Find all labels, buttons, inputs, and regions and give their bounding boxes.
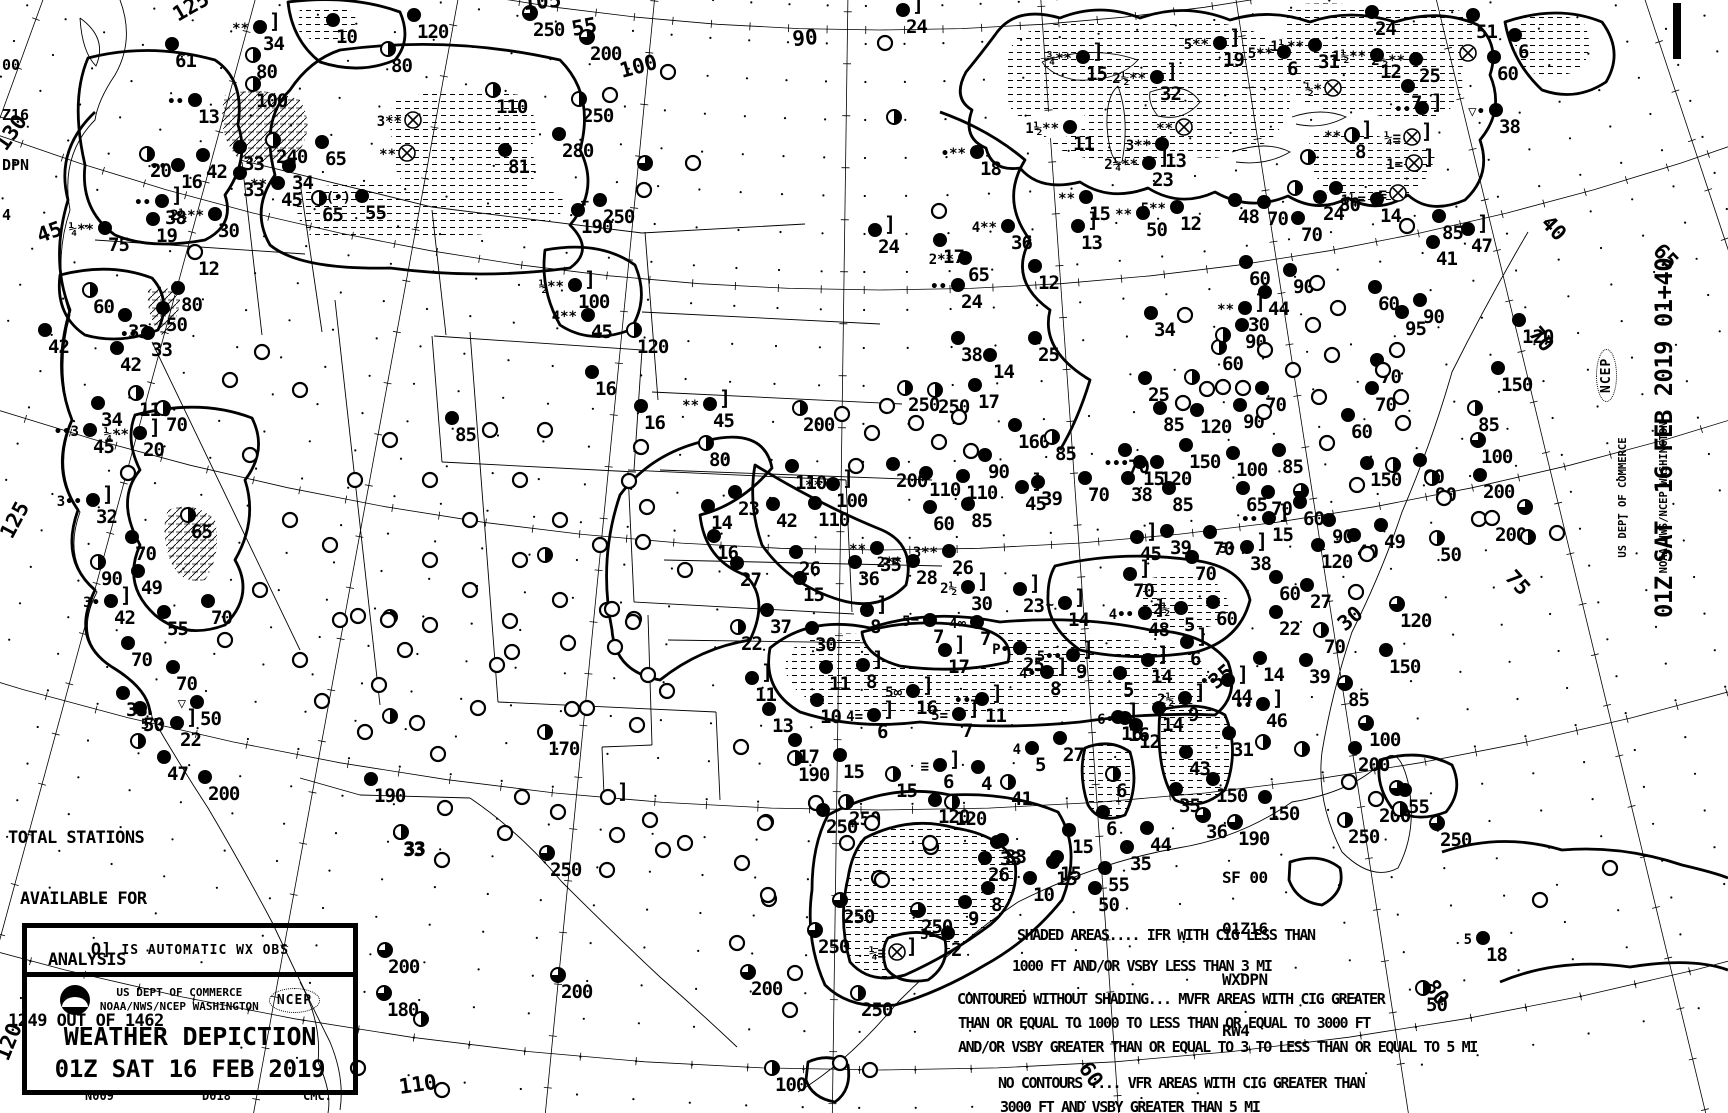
svg-text:••: ••	[150, 159, 167, 175]
svg-text:]: ]	[872, 647, 884, 671]
svg-text:**: **	[849, 542, 866, 558]
station-plot: 47	[157, 750, 188, 785]
svg-text:4: 4	[1013, 742, 1021, 758]
station-plot: 27	[1053, 731, 1084, 766]
svg-text:••: ••	[1394, 102, 1411, 118]
station-plot	[483, 423, 497, 437]
station-plot	[1386, 458, 1400, 472]
svg-text:2½: 2½	[940, 581, 957, 597]
svg-text:]: ]	[719, 386, 731, 410]
stats-line: AVAILABLE FOR	[20, 891, 164, 908]
svg-text:½**: ½**	[539, 279, 564, 295]
station-plot: 50	[1430, 531, 1461, 566]
station-plot	[758, 816, 772, 830]
station-plot: 70	[1078, 471, 1109, 506]
station-plot	[835, 407, 849, 421]
station-plot: 49	[1374, 518, 1405, 553]
station-plot	[1286, 363, 1300, 377]
station-plot	[1216, 328, 1230, 342]
station-plot: 44	[1140, 821, 1171, 856]
svg-text:55: 55	[1108, 874, 1129, 896]
contoured-note-2: THAN OR EQUAL TO 1000 TO LESS THAN OR EQ…	[958, 1016, 1370, 1031]
svg-text:15: 15	[1089, 203, 1110, 225]
svg-text:¼**: ¼**	[69, 222, 94, 238]
svg-text:60: 60	[1351, 421, 1372, 443]
station-plot	[1200, 382, 1214, 396]
svg-text:100: 100	[578, 291, 610, 313]
side-agency: US DEPT OF COMMERCE NOAA/NWS/NCEP WASHIN…	[1590, 410, 1685, 585]
svg-text:42: 42	[48, 336, 69, 358]
svg-text:25: 25	[1038, 344, 1059, 366]
station-plot: 200	[1473, 468, 1515, 503]
svg-text:38: 38	[1131, 484, 1152, 506]
svg-text:120: 120	[1400, 610, 1432, 632]
svg-text:50: 50	[1440, 544, 1461, 566]
svg-text:44: 44	[1150, 834, 1171, 856]
svg-text:18: 18	[1486, 944, 1507, 966]
svg-text:**: **	[1058, 191, 1075, 207]
station-plot: 150	[1258, 790, 1300, 825]
station-plot	[551, 805, 565, 819]
svg-text:16: 16	[644, 412, 665, 434]
svg-text:6: 6	[1190, 648, 1201, 670]
station-plot: 120	[627, 323, 669, 358]
svg-text:60: 60	[1279, 583, 1300, 605]
svg-text:60: 60	[1222, 353, 1243, 375]
station-plot: 70	[166, 660, 197, 695]
svg-text:]: ]	[1157, 642, 1169, 666]
side-dept-line: US DEPT OF COMMERCE	[1617, 410, 1631, 585]
svg-text:90: 90	[988, 461, 1009, 483]
svg-text:]: ]	[269, 9, 281, 33]
station-plot	[315, 694, 329, 708]
contoured-note-3: AND/OR VSBY GREATER THAN OR EQUAL TO 3 T…	[958, 1040, 1477, 1055]
svg-text:••: ••	[1235, 698, 1252, 714]
station-plot	[840, 836, 854, 850]
station-plot	[788, 966, 802, 980]
station-plot: 42	[766, 497, 797, 532]
station-plot	[1472, 512, 1486, 526]
svg-text:60: 60	[1303, 508, 1324, 530]
svg-text:∼: ∼	[1046, 597, 1054, 613]
svg-text:4••: 4••	[1109, 607, 1134, 623]
svg-text:5: 5	[1184, 614, 1195, 636]
svg-text:48: 48	[1238, 206, 1259, 228]
svg-text:16: 16	[595, 378, 616, 400]
station-plot	[622, 474, 636, 488]
svg-text:30: 30	[815, 634, 836, 656]
station-plot: 38	[951, 331, 982, 366]
station-plot	[333, 613, 347, 627]
svg-text:4•: 4•	[1019, 666, 1036, 682]
station-plot	[435, 853, 449, 867]
svg-text:280: 280	[562, 140, 594, 162]
station-plot: 34**]	[232, 9, 284, 55]
code-line: 4	[2, 208, 29, 223]
station-plot	[414, 1012, 428, 1026]
station-plot	[1603, 861, 1617, 875]
svg-text:65: 65	[191, 521, 212, 543]
svg-text:27: 27	[1310, 591, 1331, 613]
svg-text:4=: 4=	[846, 709, 863, 725]
svg-text:250: 250	[1348, 826, 1380, 848]
svg-text:14: 14	[1151, 666, 1172, 688]
svg-text:]: ]	[120, 583, 132, 607]
station-plot	[293, 383, 307, 397]
station-plot	[909, 416, 923, 430]
station-plot	[1349, 585, 1363, 599]
svg-text:42: 42	[120, 354, 141, 376]
svg-text:9: 9	[968, 908, 979, 930]
station-plot	[600, 863, 614, 877]
svg-text:190: 190	[581, 216, 613, 238]
station-plot	[887, 110, 901, 124]
grid-label: 90	[791, 25, 818, 51]
svg-text:26: 26	[952, 557, 973, 579]
station-plot: 60	[83, 283, 114, 318]
svg-text:2**: 2**	[877, 555, 902, 571]
svg-text:45: 45	[591, 321, 612, 343]
svg-text:27: 27	[740, 569, 761, 591]
svg-text:]: ]	[1166, 59, 1178, 83]
svg-text:]: ]	[1237, 662, 1249, 686]
station-plot: 39	[1299, 653, 1330, 688]
station-plot	[640, 500, 654, 514]
station-plot: 50▽	[178, 695, 222, 730]
station-plot	[610, 828, 624, 842]
station-plot: 100½**]	[539, 267, 610, 313]
svg-text:2: 2	[951, 939, 961, 961]
station-plot	[637, 183, 651, 197]
svg-text:**: **	[1217, 302, 1234, 318]
svg-text:]: ]	[1421, 119, 1433, 143]
svg-text:2½: 2½	[1157, 692, 1174, 708]
svg-text:41: 41	[1011, 788, 1032, 810]
station-plot: 15**	[1058, 190, 1110, 225]
svg-text:≡: ≡	[921, 759, 929, 775]
svg-text:11: 11	[1073, 133, 1094, 155]
station-plot: 70	[1291, 211, 1322, 246]
svg-text:**: **	[805, 478, 822, 494]
svg-text:20: 20	[143, 439, 164, 461]
svg-text:2¼**: 2¼**	[1104, 157, 1138, 173]
svg-text:]: ]	[1229, 25, 1241, 49]
station-plot: 85	[1338, 676, 1369, 711]
svg-text:70: 70	[1301, 224, 1322, 246]
station-plot: 15	[833, 748, 864, 783]
svg-text:42: 42	[206, 161, 227, 183]
svg-text:85: 85	[1348, 689, 1369, 711]
svg-text:5”•: 5”•	[141, 717, 166, 733]
svg-text:]: ]	[1423, 145, 1435, 169]
svg-text:15: 15	[843, 761, 864, 783]
svg-text:5**: 5**	[1141, 201, 1166, 217]
station-plot: 14	[1253, 651, 1284, 686]
station-plot: 200	[1485, 511, 1527, 546]
station-plot	[358, 725, 372, 739]
svg-text:]: ]	[617, 779, 629, 803]
svg-text:75: 75	[108, 234, 129, 256]
station-plot	[660, 684, 674, 698]
svg-text:••: ••	[167, 94, 184, 110]
svg-text:]: ]	[102, 482, 114, 506]
svg-text:¼≡: ¼≡	[869, 946, 886, 962]
station-plot: 60	[1212, 340, 1243, 375]
svg-text:]: ]	[954, 632, 966, 656]
svg-text:43: 43	[1189, 758, 1210, 780]
station-plot: 3**	[377, 112, 421, 130]
svg-text:70: 70	[1267, 208, 1288, 230]
grid-label: 100	[617, 50, 660, 83]
svg-text:3••: 3••	[57, 494, 82, 510]
station-plot	[678, 836, 692, 850]
station-plot: 11]	[745, 660, 776, 706]
station-plot	[865, 426, 879, 440]
svg-text:170: 170	[548, 738, 580, 760]
stats-line: TOTAL STATIONS	[8, 830, 164, 847]
svg-text:6: 6	[1116, 780, 1127, 802]
svg-text:34: 34	[1154, 319, 1175, 341]
svg-text:1½**: 1½**	[1332, 49, 1366, 65]
station-plot: 70	[125, 530, 156, 565]
auto-obs-label: IS AUTOMATIC WX OBS	[121, 943, 289, 958]
station-plot	[641, 668, 655, 682]
station-plot	[1257, 405, 1271, 419]
svg-text:14: 14	[1380, 205, 1401, 227]
svg-text:]: ]	[149, 415, 161, 439]
station-plot: 80	[381, 42, 412, 77]
station-plot	[1350, 478, 1364, 492]
svg-text:22: 22	[1279, 618, 1300, 640]
svg-text:]: ]	[1092, 39, 1104, 63]
station-plot	[323, 538, 337, 552]
svg-text:]: ]	[1127, 699, 1139, 723]
svg-text:8: 8	[866, 671, 877, 693]
shaded-areas-note-1: SHADED AREAS.... IFR WITH CIG LESS THAN	[1017, 928, 1315, 943]
svg-text:•••: •••	[1104, 456, 1129, 472]
svg-text:]: ]	[1196, 624, 1208, 648]
svg-text:(•): (•)	[326, 190, 351, 206]
station-plot: 6≡]	[921, 747, 961, 793]
station-plot: 23]	[1013, 571, 1044, 617]
station-plot: 25	[1138, 371, 1169, 406]
svg-text:30: 30	[971, 593, 992, 615]
svg-text:15: 15	[1272, 524, 1293, 546]
svg-text:85: 85	[971, 510, 992, 532]
svg-text:23: 23	[738, 498, 759, 520]
station-plot	[410, 716, 424, 730]
svg-text:60: 60	[933, 513, 954, 535]
svg-text:]: ]	[1158, 145, 1170, 169]
svg-text:100: 100	[775, 1074, 807, 1096]
svg-text:70: 70	[1195, 563, 1216, 585]
svg-text:120: 120	[417, 21, 449, 43]
svg-text:15: 15	[803, 584, 824, 606]
svg-text:]: ]	[761, 660, 773, 684]
station-plot	[423, 473, 437, 487]
svg-text:25: 25	[1148, 384, 1169, 406]
station-plot	[833, 1056, 847, 1070]
svg-text:]: ]	[991, 681, 1003, 705]
station-plot	[255, 345, 269, 359]
svg-text:250: 250	[921, 916, 953, 938]
svg-text:100: 100	[256, 90, 288, 112]
station-plot: 25	[1028, 331, 1059, 366]
station-plot	[1301, 150, 1315, 164]
svg-text:150: 150	[1389, 656, 1421, 678]
svg-text:5: 5	[1035, 754, 1046, 776]
svg-text:5: 5	[1123, 679, 1134, 701]
svg-text:38: 38	[961, 344, 982, 366]
svg-text:70: 70	[1088, 484, 1109, 506]
station-plot	[580, 701, 594, 715]
svg-text:47: 47	[1471, 235, 1492, 257]
station-plot	[1288, 181, 1302, 195]
station-plot	[423, 618, 437, 632]
svg-text:85: 85	[455, 424, 476, 446]
svg-text:36: 36	[1011, 232, 1032, 254]
station-plot	[952, 410, 966, 424]
svg-text:]: ]	[1029, 571, 1041, 595]
svg-text:]: ]	[1254, 290, 1266, 314]
agency-line: NOAA/NWS/NCEP WASHINGTON	[100, 1000, 259, 1014]
svg-text:12: 12	[198, 258, 219, 280]
svg-text:5**: 5**	[1248, 46, 1273, 62]
svg-text:]: ]	[1031, 469, 1043, 493]
svg-text:200: 200	[1483, 481, 1515, 503]
station-plot	[243, 448, 257, 462]
station-plot: 250	[1430, 816, 1472, 851]
svg-text:100: 100	[1369, 729, 1401, 751]
station-plot: 170	[538, 725, 580, 760]
station-plot: ¼≡]	[1384, 119, 1433, 147]
station-plot	[626, 615, 640, 629]
station-plot	[538, 548, 552, 562]
svg-text:150: 150	[1189, 451, 1221, 473]
svg-text:250: 250	[826, 816, 858, 838]
station-plot	[849, 459, 863, 473]
svg-text:11: 11	[985, 705, 1006, 727]
station-plot	[351, 609, 365, 623]
station-plot: 38▽•	[1468, 103, 1520, 138]
grid-label: 75	[1500, 565, 1535, 600]
svg-text:200: 200	[1358, 754, 1390, 776]
svg-text:]: ]	[1082, 637, 1094, 661]
svg-text:1=: 1=	[1386, 157, 1403, 173]
svg-text:12: 12	[1180, 213, 1201, 235]
svg-text:**: **	[1156, 121, 1173, 137]
svg-text:250: 250	[818, 936, 850, 958]
svg-text:33: 33	[151, 339, 172, 361]
svg-text:120: 120	[1321, 551, 1353, 573]
station-plot: 48	[1228, 193, 1259, 228]
svg-text:65: 65	[322, 204, 343, 226]
svg-text:150: 150	[1501, 374, 1533, 396]
station-plot: 17	[968, 378, 999, 413]
station-plot	[553, 513, 567, 527]
station-plot: 4	[971, 760, 992, 795]
station-plot: 54	[1013, 741, 1046, 776]
svg-text:81: 81	[508, 156, 529, 178]
svg-text:85: 85	[1172, 494, 1193, 516]
svg-text:2½**: 2½**	[1112, 71, 1146, 87]
svg-text:100: 100	[836, 490, 868, 512]
svg-text:250: 250	[550, 859, 582, 881]
station-plot: ]	[601, 779, 629, 804]
svg-text:33: 33	[404, 838, 425, 860]
station-plot	[656, 843, 670, 857]
svg-text:18: 18	[980, 158, 1001, 180]
station-plot: 100	[1359, 716, 1401, 751]
svg-text:]: ]	[1146, 519, 1158, 543]
svg-text:16: 16	[1121, 723, 1142, 745]
station-plot: 200	[793, 401, 835, 436]
svg-text:¾**: ¾**	[1047, 51, 1072, 67]
svg-text:90: 90	[1423, 306, 1444, 328]
svg-text:15: 15	[1072, 836, 1093, 858]
station-plot	[1360, 547, 1374, 561]
svg-text:6: 6	[1518, 41, 1529, 63]
svg-text:49: 49	[1384, 531, 1405, 553]
side-agency-line: NOAA/NWS/NCEP WASHINGTON	[1658, 410, 1672, 585]
station-plot: 22	[1269, 605, 1300, 640]
svg-text:4∞: 4∞	[949, 616, 966, 632]
svg-text:]: ]	[1477, 211, 1489, 235]
svg-text:200: 200	[208, 783, 240, 805]
svg-text:12: 12	[1038, 272, 1059, 294]
svg-text:19: 19	[156, 225, 177, 247]
station-plot	[505, 645, 519, 659]
station-plot: 15	[886, 767, 917, 802]
station-plot	[1176, 396, 1190, 410]
svg-text:46: 46	[1266, 710, 1287, 732]
svg-text:5=: 5=	[902, 614, 919, 630]
station-plot: 385•]	[1219, 529, 1271, 575]
station-plot	[131, 734, 145, 748]
station-plot: 37	[760, 603, 791, 638]
station-plot: 85	[445, 411, 476, 446]
station-plot	[638, 156, 652, 170]
side-ncep-logo: NCEP	[1596, 349, 1617, 402]
station-plot	[1400, 219, 1414, 233]
svg-text:3**: 3**	[377, 114, 402, 130]
svg-text:15: 15	[896, 780, 917, 802]
station-plot	[863, 1063, 877, 1077]
svg-text:]: ]	[1431, 90, 1443, 114]
station-plot	[932, 204, 946, 218]
station-plot: 80	[699, 436, 730, 471]
svg-text:]: ]	[968, 696, 980, 720]
station-plot: 10	[1023, 871, 1054, 906]
svg-text:**: **	[232, 21, 249, 37]
ncep-logo: NCEP	[269, 988, 320, 1013]
station-plot	[636, 535, 650, 549]
svg-text:60: 60	[1216, 608, 1237, 630]
station-plot: 55	[157, 605, 188, 640]
svg-text:150: 150	[1268, 803, 1300, 825]
station-plot: 27	[730, 556, 761, 591]
station-plot: 60	[1293, 495, 1324, 530]
svg-text:38: 38	[1250, 553, 1271, 575]
grid-label: 105	[522, 0, 562, 15]
svg-text:]: ]	[912, 0, 924, 16]
svg-text:5**: 5**	[1184, 37, 1209, 53]
station-plot	[381, 613, 395, 627]
svg-text:**: **	[379, 147, 396, 163]
station-plot	[490, 658, 504, 672]
sf-line: SF 00	[1222, 870, 1268, 886]
station-plot	[761, 888, 775, 902]
